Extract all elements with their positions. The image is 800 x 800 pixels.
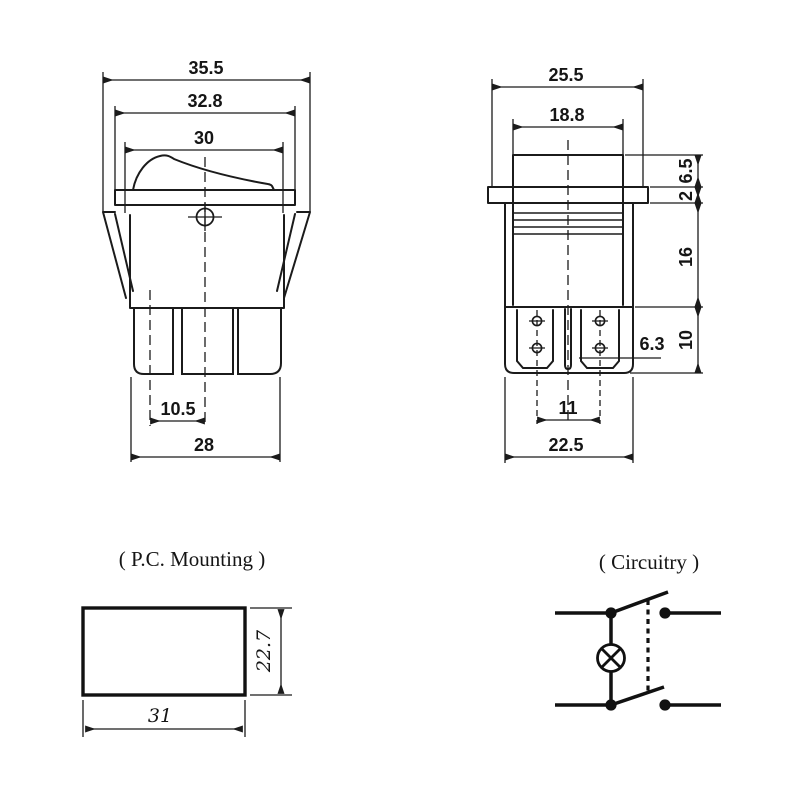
dim-cutout-width: 31 bbox=[148, 705, 172, 727]
front-rocker-profile bbox=[133, 155, 274, 190]
dim-body-width: 28 bbox=[194, 435, 214, 455]
dim-cutout-height: 22.7 bbox=[253, 629, 275, 673]
front-body bbox=[130, 215, 284, 308]
front-terminal-fins bbox=[134, 308, 281, 374]
dim-flange-thickness: 2 bbox=[676, 191, 696, 201]
dim-terminal-pitch-front: 10.5 bbox=[160, 399, 195, 419]
lamp-icon bbox=[598, 645, 625, 672]
dim-body-depth: 22.5 bbox=[548, 435, 583, 455]
circuit-wires bbox=[555, 613, 721, 705]
circuitry-view: ( Circuitry ) bbox=[555, 550, 721, 711]
pc-mounting-cutout bbox=[83, 608, 245, 695]
pc-mounting-title: ( P.C. Mounting ) bbox=[119, 547, 265, 571]
dim-rocker-depth: 18.8 bbox=[549, 105, 584, 125]
dim-rocker-width: 30 bbox=[194, 128, 214, 148]
pc-mounting-view: ( P.C. Mounting ) 22.7 31 bbox=[83, 547, 292, 737]
side-view: 25.5 18.8 6.5 2 16 10 6.3 11 22.5 bbox=[488, 65, 703, 463]
dim-terminal-pitch-side: 11 bbox=[558, 398, 577, 418]
drawing-sheet: 35.5 32.8 30 10.5 28 bbox=[0, 0, 800, 800]
front-view: 35.5 32.8 30 10.5 28 bbox=[103, 58, 310, 462]
dim-bezel-height: 6.5 bbox=[676, 158, 696, 183]
dim-terminal-width: 6.3 bbox=[639, 334, 664, 354]
dim-terminal-zone-height: 10 bbox=[676, 330, 696, 350]
dim-overall-depth: 25.5 bbox=[548, 65, 583, 85]
side-extension-lines bbox=[492, 79, 703, 463]
crosshair-icon bbox=[188, 203, 222, 231]
dim-overall-width: 35.5 bbox=[188, 58, 223, 78]
switch-dimension-drawing: 35.5 32.8 30 10.5 28 bbox=[0, 0, 800, 800]
circuitry-title: ( Circuitry ) bbox=[599, 550, 699, 574]
dim-bezel-width: 32.8 bbox=[187, 91, 222, 111]
dim-body-height: 16 bbox=[676, 247, 696, 267]
